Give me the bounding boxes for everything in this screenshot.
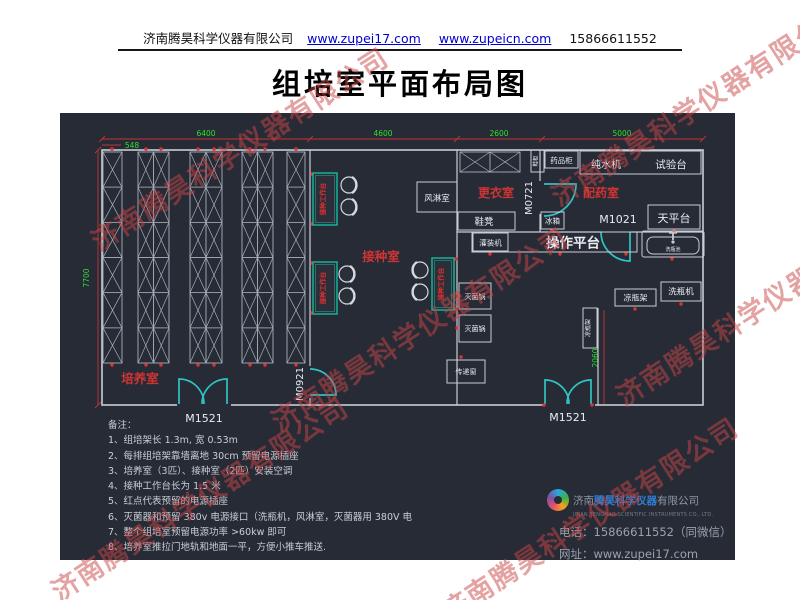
footer-company-prefix: 济南 xyxy=(573,495,594,507)
power-outlet-dot xyxy=(159,147,162,150)
door-m1021 xyxy=(601,232,630,261)
power-outlet-dot xyxy=(196,147,199,150)
door-m0921 xyxy=(310,369,336,395)
shoe-bench-label: 鞋凳 xyxy=(474,216,494,228)
inoculation-bench-3-label: 接种工作台 xyxy=(436,267,445,300)
footer-phone-value: 15866611552（同微信） xyxy=(594,525,732,539)
note-line: 6、灭菌器和预留 380v 电源接口（洗瓶机，风淋室，灭菌器用 380V 电 xyxy=(108,510,412,525)
door-m1521-left xyxy=(179,379,227,404)
power-outlet-dot xyxy=(454,257,457,260)
changing-room-label: 更衣室 xyxy=(478,185,514,200)
footer-phone-label: 电话： xyxy=(559,525,594,539)
power-outlet-dot xyxy=(455,326,458,329)
medicine-cabinet-label: 药品柜 xyxy=(550,155,573,165)
inoculation-bench-1-label: 接种工作台 xyxy=(318,182,327,215)
door-label-m1021: M1021 xyxy=(599,213,637,226)
bottle-sink-label: 洗瓶池 xyxy=(665,246,680,253)
power-outlet-dot xyxy=(542,403,545,406)
balance-table-label: 天平台 xyxy=(658,211,691,225)
door-m1521-right xyxy=(545,380,591,404)
notes-title: 备注： xyxy=(108,418,412,433)
power-outlet-dot xyxy=(454,307,457,310)
power-outlet-dot xyxy=(263,147,266,150)
footer-company-mid: 科学仪器 xyxy=(615,495,657,507)
dispensing-room-label: 配药室 xyxy=(583,185,619,200)
header: 济南腾昊科学仪器有限公司 www.zupei17.com www.zupeicn… xyxy=(0,28,800,47)
header-link-zupei17[interactable]: www.zupei17.com xyxy=(307,31,421,46)
filling-machine-label: 灌装机 xyxy=(479,238,502,248)
power-outlet-dot xyxy=(624,252,627,255)
header-phone: 15866611552 xyxy=(569,31,656,46)
dim-6400: 6400 xyxy=(196,129,215,138)
footer-company-name: 济南腾昊科学仪器有限公司 xyxy=(573,493,699,508)
door-label-m1521-right: M1521 xyxy=(549,411,587,424)
door-m0721 xyxy=(544,184,576,216)
air-shower-label: 风淋室 xyxy=(424,193,450,204)
power-outlet-dot xyxy=(590,403,593,406)
bottle-washer-label: 洗瓶机 xyxy=(668,287,694,298)
footer-web-label: 网址： xyxy=(559,547,594,561)
power-outlet-dot xyxy=(679,302,682,305)
header-link-zupeicn[interactable]: www.zupeicn.com xyxy=(439,31,552,46)
shoe-cabinet-label: 鞋柜 xyxy=(532,155,540,167)
power-outlet-dot xyxy=(248,363,251,366)
test-bench-label: 试验台 xyxy=(655,158,687,171)
header-divider xyxy=(118,49,682,51)
power-outlet-dot xyxy=(633,307,636,310)
footer-logo-block: 济南腾昊科学仪器有限公司 JINAN TENGHAO SCIENTIFIC IN… xyxy=(547,489,752,562)
equipment: 风淋室 鞋柜 药品柜 纯水机 试验台 冰箱 天平台 鞋凳 操作平台 灌装机 xyxy=(417,150,704,383)
power-outlet-dot xyxy=(196,363,199,366)
bottle-cool-rack-vertical-label: 凉瓶架 xyxy=(584,319,592,337)
footer-company-english: JINAN TENGHAO SCIENTIFIC INSTRUMENTS CO.… xyxy=(573,512,752,518)
power-outlet-dot xyxy=(144,147,147,150)
dim-548: 548 xyxy=(125,141,140,150)
power-outlet-dot xyxy=(110,363,113,366)
note-line: 2、每排组培架靠墙离地 30cm 预留电源插座 xyxy=(108,449,412,464)
dim-2600: 2600 xyxy=(489,129,508,138)
inoculation-bench-2-label: 接种工作台 xyxy=(318,271,327,304)
power-outlet-dot xyxy=(110,147,113,150)
power-outlet-dot xyxy=(558,252,561,255)
transfer-window-label: 传递窗 xyxy=(456,367,477,376)
power-outlet-dot xyxy=(294,363,297,366)
page: 济南腾昊科学仪器有限公司 www.zupei17.com www.zupeicn… xyxy=(0,0,800,600)
note-line: 5、红点代表预留的电源插座 xyxy=(108,494,412,509)
footer-web-line: 网址：www.zupei17.com xyxy=(559,546,752,562)
sterilizer-1-label: 灭菌锅 xyxy=(465,292,486,301)
cad-panel: 6400 4600 2600 5000 548 7700 2060 xyxy=(60,113,735,560)
sterilizer-2-label: 灭菌锅 xyxy=(465,324,486,333)
note-line: 3、培养室（3匹）、接种室（2匹）安装空调 xyxy=(108,464,412,479)
stools xyxy=(339,177,428,304)
operation-platform-label: 操作平台 xyxy=(546,235,600,252)
power-outlet-dot xyxy=(159,363,162,366)
power-outlet-dot xyxy=(455,294,458,297)
door-label-m0921: M0921 xyxy=(295,367,306,401)
company-logo-icon xyxy=(547,489,569,511)
note-line: 4、接种工作台长为 1.5 米 xyxy=(108,479,412,494)
power-outlet-dot xyxy=(294,147,297,150)
water-machine-label: 纯水机 xyxy=(591,158,621,171)
note-line: 1、组培架长 1.3m, 宽 0.53m xyxy=(108,433,412,448)
power-outlet-dot xyxy=(144,363,147,366)
power-outlet-dot xyxy=(212,147,215,150)
inoculation-room-label: 接种室 xyxy=(362,249,400,264)
page-title: 组培室平面布局图 xyxy=(0,61,800,103)
power-outlet-dot xyxy=(248,147,251,150)
note-line: 8、培养室推拉门地轨和地面一平，方便小推车推送. xyxy=(108,540,412,555)
footer-company-brand: 腾昊 xyxy=(594,495,615,507)
footer-web-value: www.zupei17.com xyxy=(594,547,699,561)
dim-4600: 4600 xyxy=(373,129,392,138)
dim-7700: 7700 xyxy=(82,268,91,287)
dim-2060: 2060 xyxy=(591,348,600,367)
notes-block: 备注： 1、组培架长 1.3m, 宽 0.53m 2、每排组培架靠墙离地 30c… xyxy=(108,418,412,556)
culture-room-label: 培养室 xyxy=(121,371,159,386)
footer-company-suffix: 有限公司 xyxy=(657,495,699,507)
doors xyxy=(179,184,630,404)
fridge-label: 冰箱 xyxy=(545,216,560,226)
power-outlet-dot xyxy=(212,363,215,366)
bottle-cool-rack-label: 凉瓶架 xyxy=(624,293,648,303)
dim-5000: 5000 xyxy=(612,129,631,138)
footer-phone-line: 电话：15866611552（同微信） xyxy=(559,524,752,540)
power-outlet-dot xyxy=(670,257,673,260)
door-label-m0721: M0721 xyxy=(524,181,535,215)
power-outlet-dot xyxy=(488,252,491,255)
power-outlet-dot xyxy=(263,363,266,366)
note-line: 7、整个组培室预留电源功率 >60kw 即可 xyxy=(108,525,412,540)
header-company: 济南腾昊科学仪器有限公司 xyxy=(143,31,293,46)
power-outlet-dot xyxy=(459,355,462,358)
